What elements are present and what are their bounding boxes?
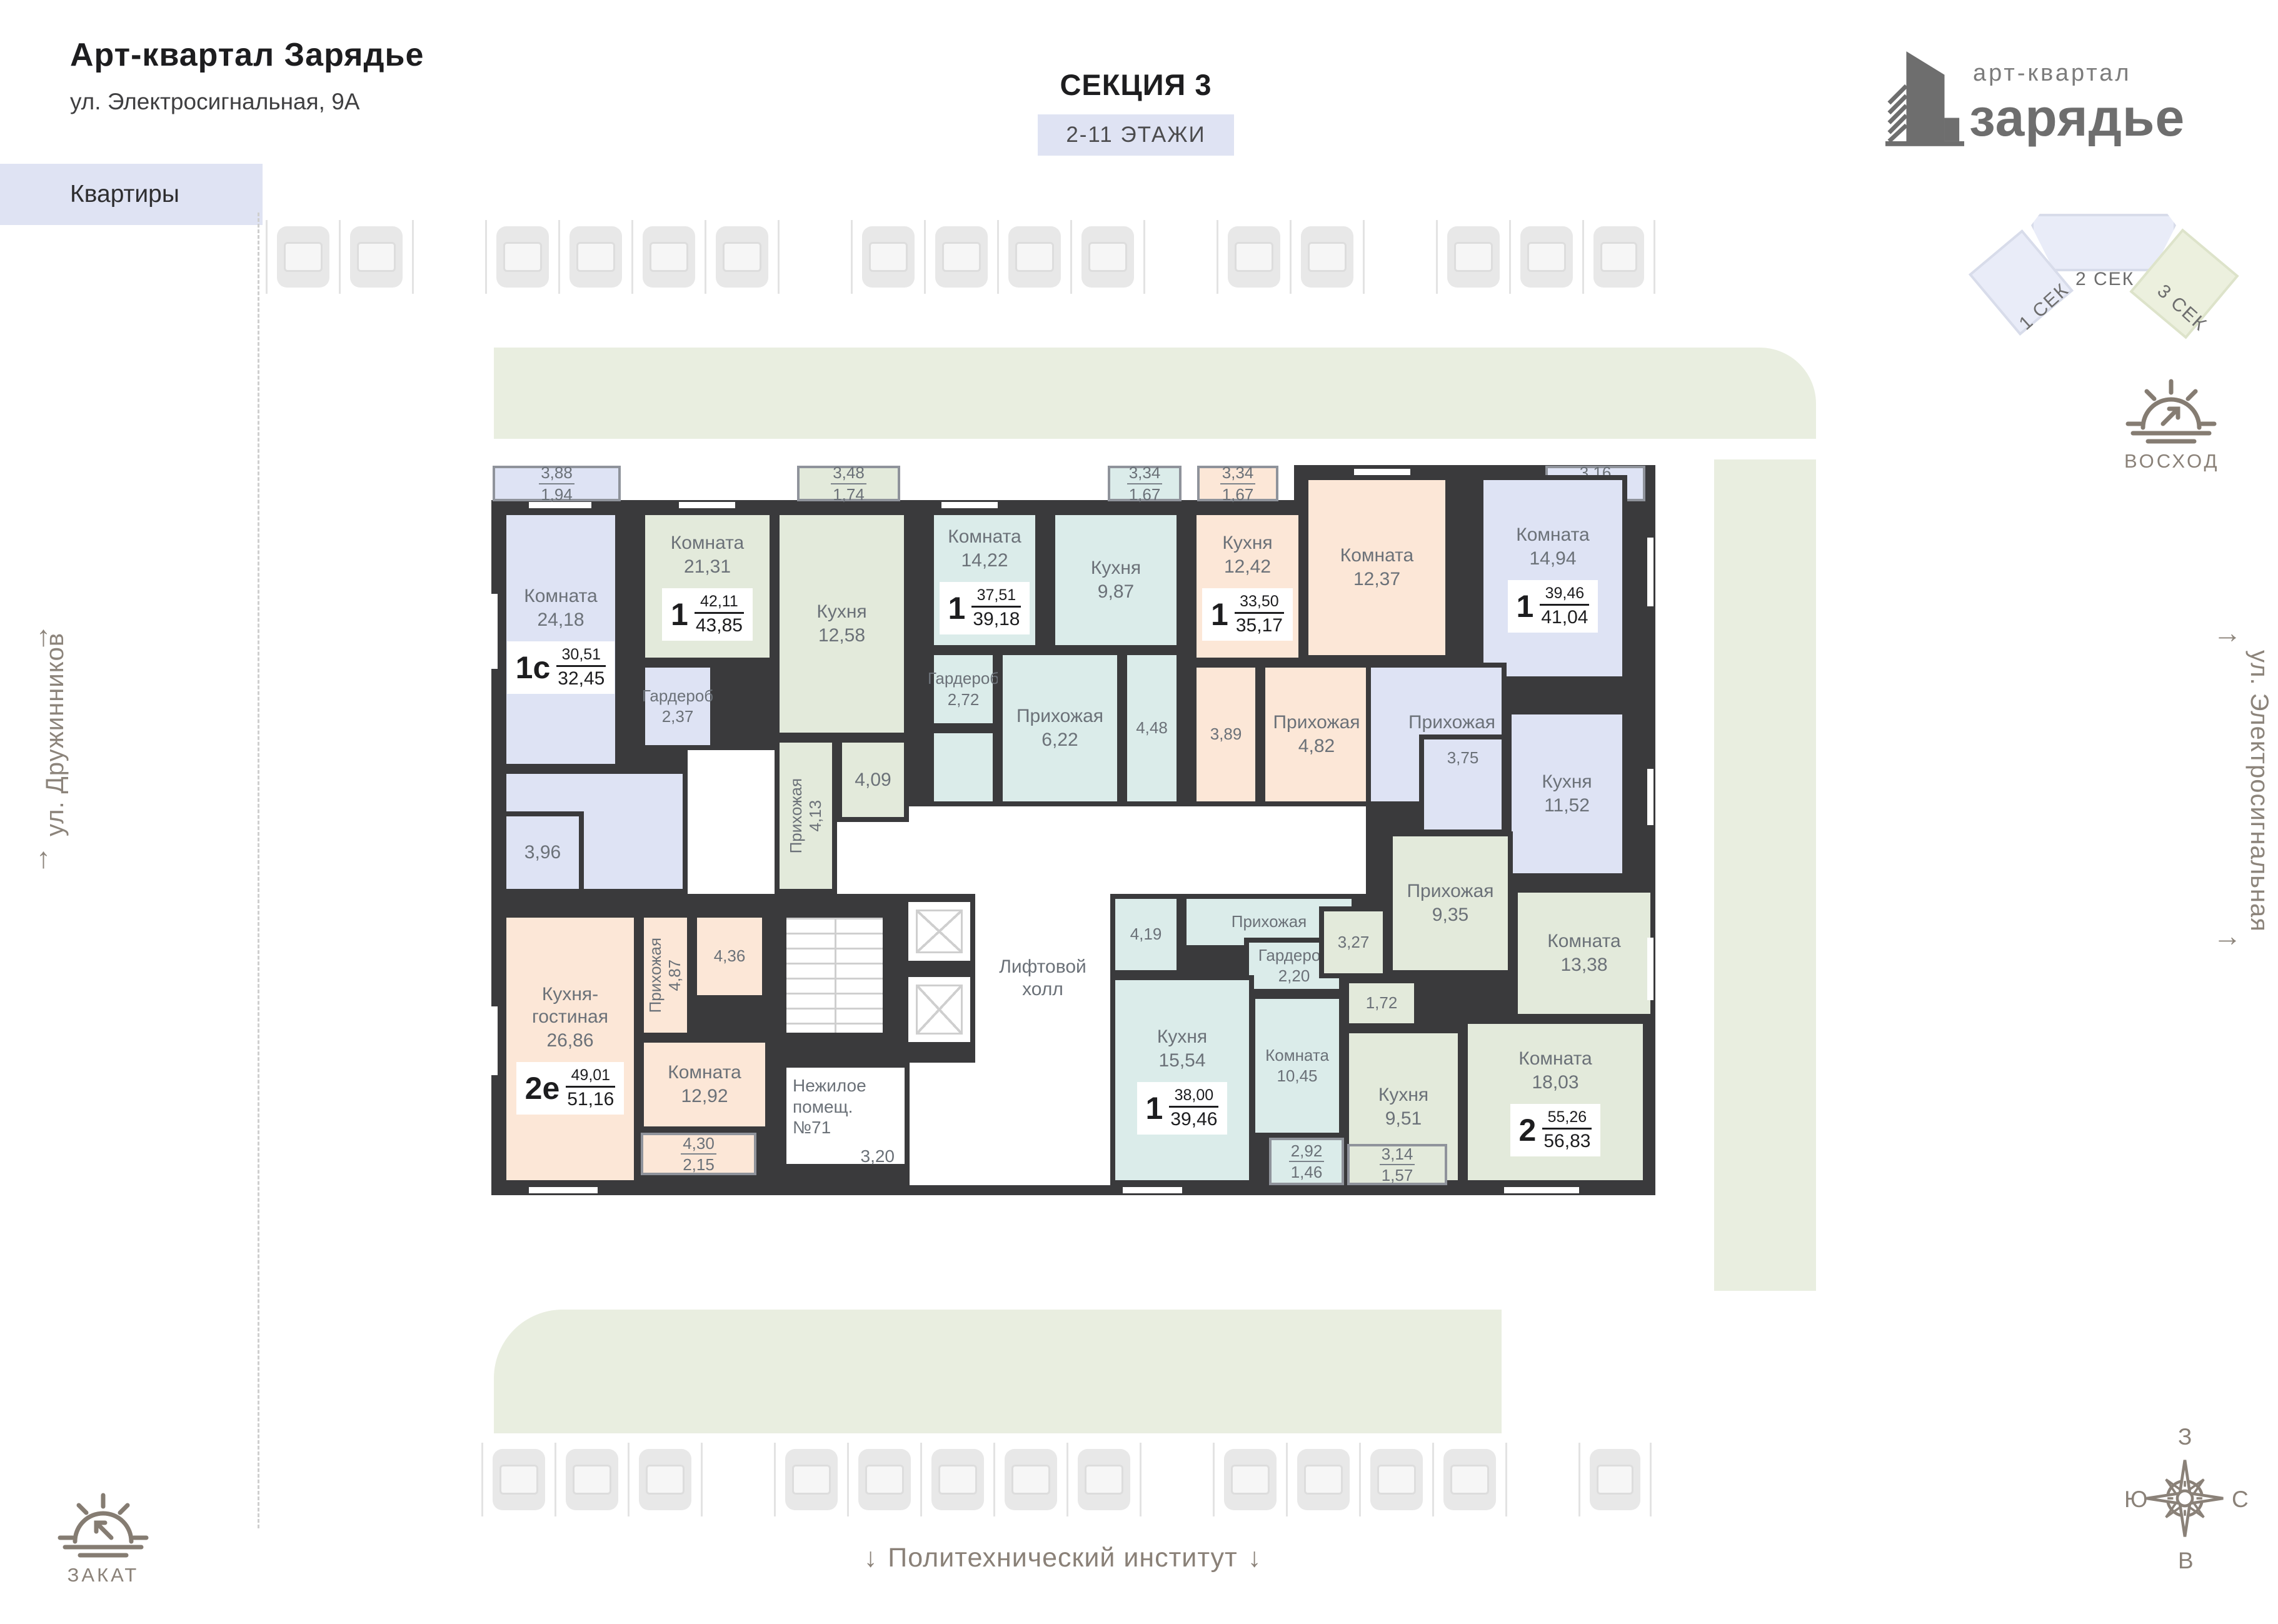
parking-stall — [701, 1443, 774, 1516]
landmark-arrow-right: ↓ — [1248, 1543, 1262, 1573]
nonresidential-unit: Нежилое помещ. №71 3,20 — [781, 1063, 910, 1169]
parking-stall — [847, 1443, 920, 1516]
lawn-bottom — [494, 1310, 1502, 1433]
street-left-arrow-bottom: ↑ — [36, 841, 51, 875]
lift-hall: Лифтовой холл — [975, 894, 1110, 1063]
elevator-1 — [903, 897, 975, 966]
apartment-2e-hallway[interactable]: Прихожая4,87 — [639, 913, 692, 1038]
compass-east: В — [2178, 1548, 2194, 1574]
apartment-1-3517-kitchen[interactable]: Кухня12,42 1 33,5035,17 — [1192, 510, 1303, 663]
floor-plan: 3,881,94 3,481,74 3,341,67 3,341,67 3,16… — [491, 500, 1655, 1195]
car-icon — [858, 1449, 911, 1510]
car-icon — [862, 226, 915, 288]
apartment-1-4385-badge[interactable]: 1 42,1143,85 — [662, 588, 753, 641]
apartment-1-4385-room[interactable]: Комната21,31 1 42,1143,85 — [640, 510, 775, 663]
staircase — [781, 913, 888, 1038]
window — [491, 1006, 498, 1075]
apartment-1-3918-kitchen[interactable]: Кухня9,87 — [1050, 510, 1182, 650]
car-icon — [935, 226, 988, 288]
balcony-apartment-1-3946: 2,921,46 — [1269, 1138, 1344, 1185]
window — [529, 1187, 598, 1193]
parking-stall — [993, 1443, 1066, 1516]
compass-west: З — [2178, 1424, 2192, 1450]
car-icon — [1370, 1449, 1423, 1510]
parking-row-top — [266, 220, 1655, 294]
window — [1354, 469, 1410, 475]
parking-stall — [412, 220, 485, 294]
car-icon — [639, 1449, 691, 1510]
landmark-text: Политехнический институт — [888, 1543, 1237, 1573]
car-icon — [350, 226, 403, 288]
apartment-2e-badge[interactable]: 2е 49,0151,16 — [516, 1062, 625, 1115]
apartment-2-5683-wc[interactable]: 1,72 — [1344, 978, 1419, 1028]
balcony-apartment-1-4385: 3,481,74 — [797, 466, 900, 501]
compass-north: С — [2232, 1486, 2249, 1513]
parking-stall — [774, 1443, 847, 1516]
car-icon — [785, 1449, 838, 1510]
parking-stall — [1066, 1443, 1140, 1516]
apartment-1-3918-badge[interactable]: 1 37,5139,18 — [940, 582, 1030, 635]
parking-stall — [1505, 1443, 1578, 1516]
window — [1647, 769, 1653, 825]
page-title: Арт-квартал Зарядье — [70, 36, 424, 74]
street-right-arrow-bottom: → — [2213, 919, 2242, 953]
window — [1504, 1187, 1579, 1193]
sunrise-icon — [2124, 375, 2218, 447]
window — [1647, 538, 1653, 606]
apartment-1-4104-badge[interactable]: 1 39,4641,04 — [1508, 580, 1598, 633]
apartment-1-4385-kitchen[interactable]: Кухня12,58 — [775, 510, 909, 738]
apartment-2e-room[interactable]: Комната12,92 — [639, 1038, 770, 1131]
parking-stall — [631, 220, 705, 294]
car-icon — [1590, 1449, 1640, 1510]
page-address: ул. Электросигнальная, 9А — [70, 89, 359, 115]
window — [679, 502, 735, 508]
apartment-1-4385-bathroom[interactable]: 4,09 — [837, 738, 909, 822]
lawn-right — [1714, 459, 1816, 1291]
parking-stall — [1359, 1443, 1432, 1516]
street-right-arrow-top: → — [2213, 616, 2242, 649]
compass: З С В Ю — [2124, 1424, 2243, 1574]
section-minimap: 2 СЕК 1 СЕК 3 СЕК — [1991, 210, 2254, 366]
elevator-2 — [903, 972, 975, 1047]
window — [529, 502, 591, 508]
apartment-1-3918-hall2[interactable] — [929, 728, 998, 806]
sunset-block: ЗАКАТ — [56, 1489, 150, 1586]
parking-stall — [1436, 220, 1509, 294]
car-icon — [1297, 1449, 1350, 1510]
corridor — [837, 806, 1366, 894]
car-icon — [1443, 1449, 1496, 1510]
sunrise-block: ВОСХОД — [2124, 375, 2218, 473]
parking-stall — [1578, 1443, 1652, 1516]
parking-stall — [1213, 1443, 1286, 1516]
apartment-2-5683-badge[interactable]: 2 55,2656,83 — [1510, 1104, 1601, 1157]
logo-building-icon — [1885, 48, 1965, 153]
parking-stall — [705, 220, 778, 294]
apartment-1-3517-bathroom[interactable]: 3,89 — [1192, 663, 1260, 806]
apartment-2-5683-room1[interactable]: Комната13,38 — [1513, 888, 1655, 1019]
apartment-2-5683-hallway[interactable]: Прихожая9,35 — [1388, 831, 1513, 975]
parking-stall — [266, 220, 339, 294]
apartment-1-3517-hallway[interactable]: Прихожая4,82 — [1260, 663, 1373, 806]
apartment-2-5683-bathroom[interactable]: 3,27 — [1319, 906, 1388, 978]
apartment-1c-wardrobe[interactable]: Гардероб2,37 — [640, 663, 715, 750]
parking-stall — [339, 220, 412, 294]
apartment-1-3946-room[interactable]: Комната10,45 — [1250, 994, 1344, 1138]
parking-stall — [920, 1443, 993, 1516]
parking-stall — [924, 220, 997, 294]
apartment-2e-kitchen-living[interactable]: Кухня-гостиная26,86 2е 49,0151,16 — [501, 913, 639, 1185]
apartment-1-4104-room[interactable]: Комната14,94 1 39,4641,04 — [1478, 475, 1627, 681]
car-icon — [1008, 226, 1061, 288]
parking-stall — [558, 220, 631, 294]
parking-stall — [1286, 1443, 1359, 1516]
parking-stall — [485, 220, 558, 294]
car-icon — [1593, 226, 1644, 288]
parking-stall — [1582, 220, 1655, 294]
apartment-1c-badge[interactable]: 1с 30,5132,45 — [507, 641, 615, 694]
car-icon — [1005, 1449, 1057, 1510]
street-left-label: ул. Дружинников — [41, 633, 69, 836]
tab-apartments[interactable]: Квартиры — [0, 164, 263, 225]
apartment-1-3918-bathroom[interactable]: 4,48 — [1122, 650, 1182, 806]
apartment-1-4104-bathroom[interactable]: 3,75 — [1419, 734, 1507, 835]
apartment-1-3946-badge[interactable]: 1 38,0039,46 — [1137, 1082, 1228, 1135]
parking-stall — [554, 1443, 628, 1516]
parking-stall — [778, 220, 851, 294]
parking-stall — [1290, 220, 1363, 294]
car-icon — [1224, 1449, 1277, 1510]
apartment-1-3918-room[interactable]: Комната14,22 1 37,5139,18 — [929, 510, 1040, 650]
apartment-1-3946-bathroom[interactable]: 4,19 — [1110, 894, 1182, 975]
car-icon — [1078, 1449, 1130, 1510]
apartment-1-3918-hallway[interactable]: Прихожая6,22 — [998, 650, 1122, 806]
lobby — [910, 1063, 1110, 1185]
car-icon — [569, 226, 622, 288]
parking-stall — [1432, 1443, 1505, 1516]
car-icon — [1447, 226, 1500, 288]
balcony-apartment-2e: 4,302,15 — [641, 1133, 756, 1175]
car-icon — [931, 1449, 984, 1510]
corridor — [688, 750, 788, 894]
window — [1647, 938, 1653, 1000]
apartment-1-4385-hallway[interactable]: Прихожая4,13 — [775, 738, 837, 894]
parking-stall — [1509, 220, 1582, 294]
apartment-2e-bathroom[interactable]: 4,36 — [692, 913, 767, 1000]
parking-stall — [997, 220, 1070, 294]
apartment-1-3946-kitchen[interactable]: Кухня15,54 1 38,0039,46 — [1110, 975, 1254, 1185]
parking-stall — [1217, 220, 1290, 294]
apartment-1-4104-kitchen[interactable]: Кухня11,52 — [1507, 709, 1627, 878]
site-boundary-dashed-line — [258, 213, 259, 1528]
apartment-1c-living-room[interactable]: Комната24,18 1с 30,5132,45 — [501, 510, 620, 769]
sunset-label: ЗАКАТ — [56, 1564, 150, 1586]
section-title: СЕКЦИЯ 3 — [1011, 68, 1261, 102]
car-icon — [277, 226, 329, 288]
apartment-1c-bathroom[interactable]: 3,96 — [501, 811, 584, 894]
car-icon — [566, 1449, 618, 1510]
car-icon — [496, 226, 549, 288]
balcony-apartment-1c: 3,881,94 — [493, 466, 621, 501]
landmark-label: ↓ Политехнический институт ↓ — [850, 1543, 1275, 1573]
apartment-1-3918-wardrobe[interactable]: Гардероб2,72 — [929, 650, 998, 728]
minimap-label-2: 2 СЕК — [2075, 269, 2134, 290]
car-icon — [1228, 226, 1280, 288]
compass-rose-icon — [2144, 1451, 2225, 1545]
floorplan-page: Арт-квартал Зарядье ул. Электросигнальна… — [0, 0, 2278, 1624]
car-icon — [716, 226, 768, 288]
logo-text-small: арт-квартал — [1973, 60, 2132, 87]
parking-stall — [1140, 1443, 1213, 1516]
parking-stall — [628, 1443, 701, 1516]
apartment-1-3517-badge[interactable]: 1 33,5035,17 — [1202, 588, 1293, 641]
balcony-apartment-2-5683: 3,141,57 — [1347, 1144, 1447, 1185]
street-right-label: ул. Электросигнальная — [2245, 650, 2273, 932]
car-icon — [493, 1449, 545, 1510]
car-icon — [643, 226, 695, 288]
balcony-apartment-1-3517: 3,341,67 — [1197, 466, 1278, 501]
apartment-2-5683-room2[interactable]: Комната18,03 2 55,2656,83 — [1463, 1019, 1648, 1185]
window — [941, 502, 998, 508]
window — [491, 594, 498, 669]
parking-stall — [1070, 220, 1143, 294]
apartment-1-3517-room[interactable]: Комната12,37 — [1303, 475, 1450, 660]
balcony-apartment-1-3918: 3,341,67 — [1108, 466, 1182, 501]
sunrise-label: ВОСХОД — [2124, 450, 2218, 473]
parking-stall — [1143, 220, 1217, 294]
landmark-arrow-left: ↓ — [864, 1543, 878, 1573]
window — [1123, 1187, 1182, 1193]
car-icon — [1520, 226, 1573, 288]
logo-text-large: зарядье — [1969, 88, 2185, 148]
parking-stall — [1363, 220, 1436, 294]
car-icon — [1081, 226, 1134, 288]
lawn-top — [494, 348, 1816, 439]
floors-badge: 2-11 ЭТАЖИ — [1038, 114, 1234, 156]
parking-row-bottom — [481, 1443, 1652, 1516]
parking-stall — [851, 220, 924, 294]
car-icon — [1301, 226, 1353, 288]
sunset-icon — [56, 1489, 150, 1561]
parking-stall — [481, 1443, 554, 1516]
